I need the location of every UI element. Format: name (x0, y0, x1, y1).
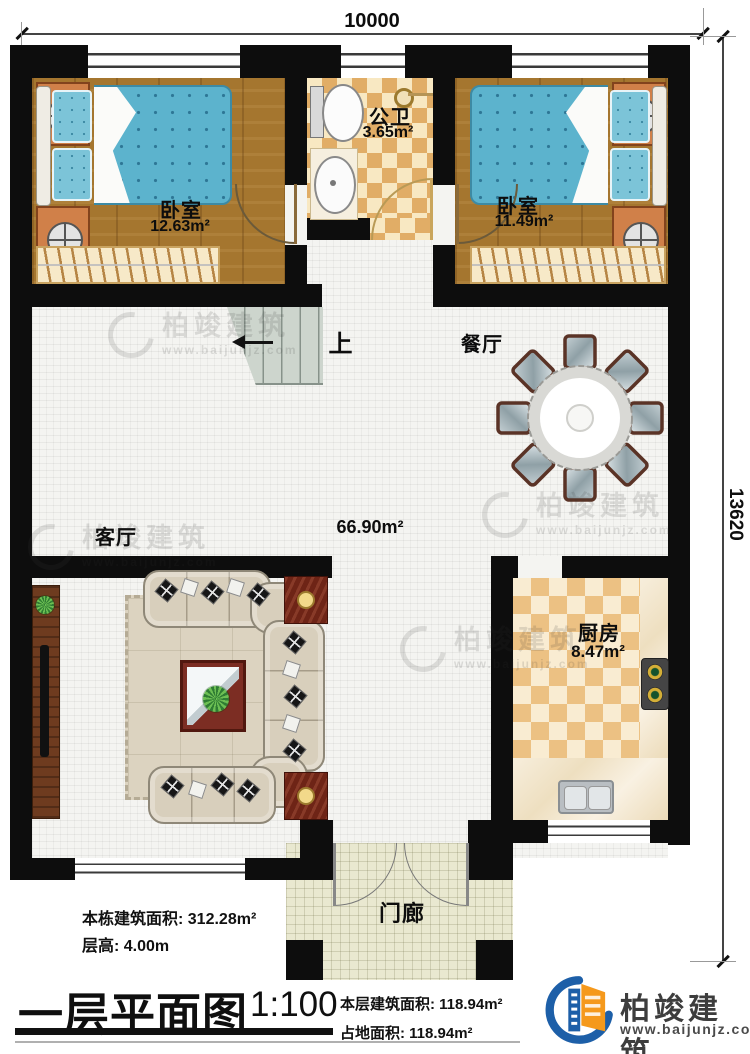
sink-drain (330, 180, 336, 186)
door-leaf-bedroom-left (294, 184, 297, 244)
porch-door-leaf (333, 843, 336, 906)
window-bedroom-right (512, 45, 648, 78)
bed-right-headboard (652, 86, 667, 206)
porch-pillar-bottom-right (476, 940, 513, 980)
floor-plan: 卧室 12.63m² 公卫 3.65m² 卧室 11.49m² 上 餐厅 客厅 … (0, 0, 750, 1054)
wall-left (10, 45, 32, 880)
bathroom-area: 3.65m² (363, 124, 414, 142)
building-area-annotation: 本栋建筑面积: 312.28m² (82, 905, 256, 929)
bed-left-pillow (52, 90, 92, 143)
door-gap-kitchen (518, 556, 562, 578)
extension-line (21, 22, 22, 45)
wall-bedroom-right-left (433, 45, 455, 307)
hall-area: 66.90m² (336, 517, 403, 538)
kitchen-sink (558, 780, 614, 814)
porch-name: 门廊 (379, 896, 425, 928)
wardrobe-right (470, 246, 666, 284)
brand-website: www.baijunjz.com (620, 1021, 750, 1037)
burner-icon (647, 664, 663, 680)
bedroom-right-area: 11.49m² (495, 213, 554, 231)
side-table-top (284, 576, 328, 624)
sink-basin (564, 786, 587, 810)
burner-icon (647, 687, 663, 703)
floor-area-annotation: 本层建筑面积: 118.94m² (340, 993, 503, 1014)
shower-arm (408, 93, 433, 96)
wall-bedroom-left-right (285, 45, 307, 307)
dimension-line-top (22, 33, 703, 35)
porch-door-leaf (466, 843, 469, 906)
door-gap-bedroom-right (433, 185, 455, 245)
bed-right-pillow (610, 148, 650, 201)
side-table-bottom (284, 772, 328, 820)
bed-left-pillow (52, 148, 92, 201)
brand-logo-icon (543, 972, 615, 1048)
dining-name: 餐厅 (461, 328, 503, 357)
toilet-bowl (322, 84, 364, 142)
bed-right-pillow (610, 90, 650, 143)
stairs-arrow-line (243, 341, 273, 344)
wall-bedroom-right-bottom (433, 284, 690, 307)
extension-line (703, 8, 704, 45)
gold-lamp-icon (297, 591, 315, 609)
dimension-height: 13620 (724, 488, 746, 541)
table-plant-icon (203, 686, 229, 712)
tv-screen (40, 645, 49, 757)
stairs-up-label: 上 (329, 324, 354, 359)
plan-scale: 1:100 (250, 985, 338, 1025)
window-bathroom (341, 45, 405, 78)
wardrobe-left (36, 246, 220, 284)
dining-table-set (495, 333, 665, 503)
wall-bedroom-left-bottom (10, 284, 322, 307)
sofa-bottom (148, 766, 276, 824)
wall-kitchen-left (491, 578, 513, 843)
porch-pillar-top-left (300, 820, 333, 880)
gold-lamp-icon (297, 787, 315, 805)
brand-company: 柏竣建筑 (620, 984, 750, 1054)
window-living-bottom (75, 858, 245, 880)
bedroom-left-area: 12.63m² (150, 218, 210, 236)
sink-basin (588, 786, 611, 810)
dining-table-center (567, 405, 593, 431)
extension-line (690, 961, 736, 962)
window-bedroom-left (88, 45, 240, 78)
window-kitchen-bottom (548, 820, 650, 843)
title-underline-thick (15, 1028, 333, 1035)
porch-pillar-bottom-left (286, 940, 323, 980)
footprint-annotation: 占地面积: 118.94m² (340, 1022, 473, 1043)
coffee-table (180, 660, 246, 732)
door-leaf-bedroom-right (456, 184, 459, 244)
cabinet-plant-icon (36, 596, 54, 614)
kitchen-floor (513, 578, 640, 758)
kitchen-area: 8.47m² (571, 642, 625, 662)
extension-line (690, 36, 736, 37)
dimension-width: 10000 (344, 10, 400, 33)
door-leaf-bathroom (430, 178, 433, 240)
stairs-arrow-head (232, 335, 245, 349)
stove (641, 658, 669, 710)
bed-left-headboard (36, 86, 51, 206)
porch-pillar-top-right (468, 820, 513, 880)
living-name: 客厅 (95, 521, 137, 550)
floor-height-annotation: 层高: 4.00m (82, 932, 169, 956)
wall-right (668, 45, 690, 845)
